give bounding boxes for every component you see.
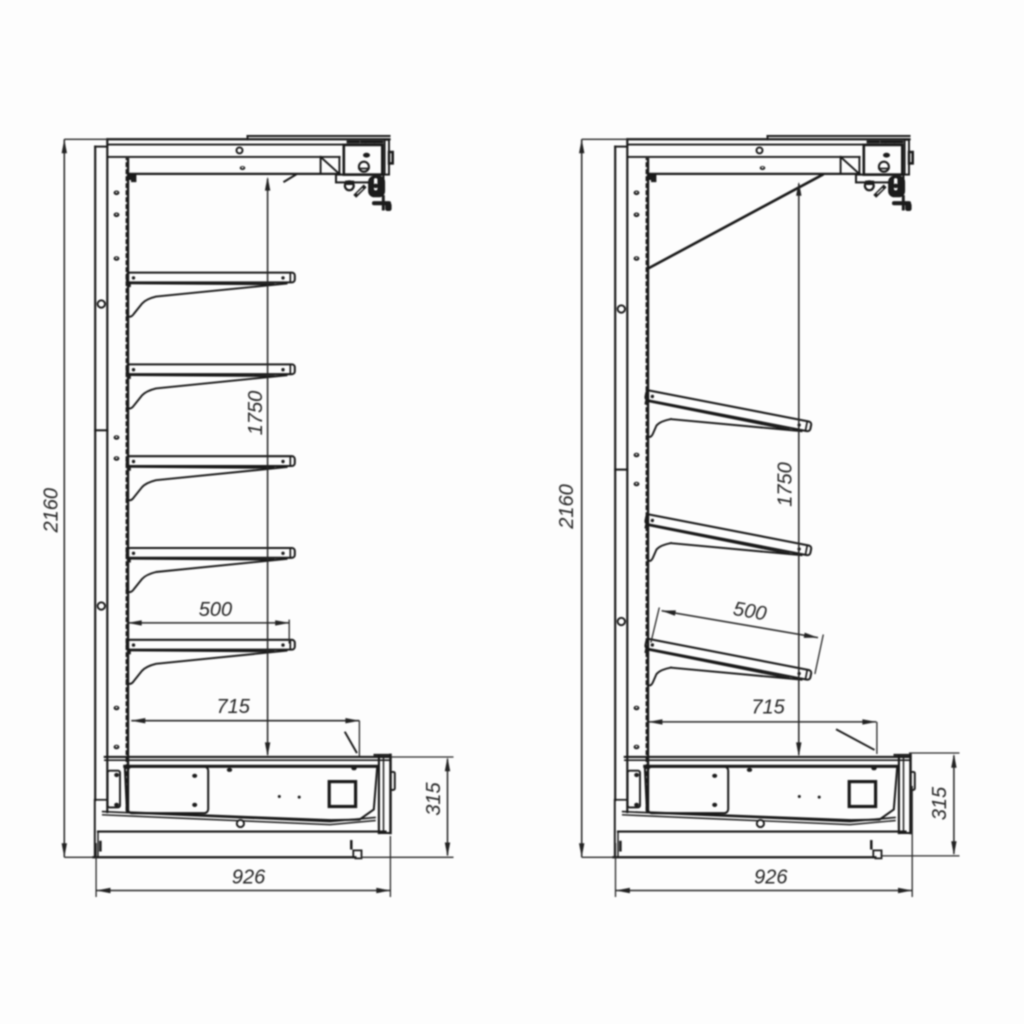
svg-text:715: 715 — [217, 696, 251, 718]
svg-text:926: 926 — [754, 867, 788, 889]
svg-text:715: 715 — [751, 696, 785, 718]
svg-text:315: 315 — [423, 781, 445, 815]
svg-text:1750: 1750 — [775, 462, 797, 507]
svg-text:500: 500 — [199, 599, 232, 621]
svg-text:2160: 2160 — [556, 484, 578, 530]
svg-text:315: 315 — [929, 786, 951, 820]
svg-text:1750: 1750 — [245, 391, 267, 436]
svg-text:926: 926 — [232, 867, 266, 889]
svg-text:500: 500 — [732, 598, 769, 625]
svg-text:2160: 2160 — [41, 488, 63, 534]
